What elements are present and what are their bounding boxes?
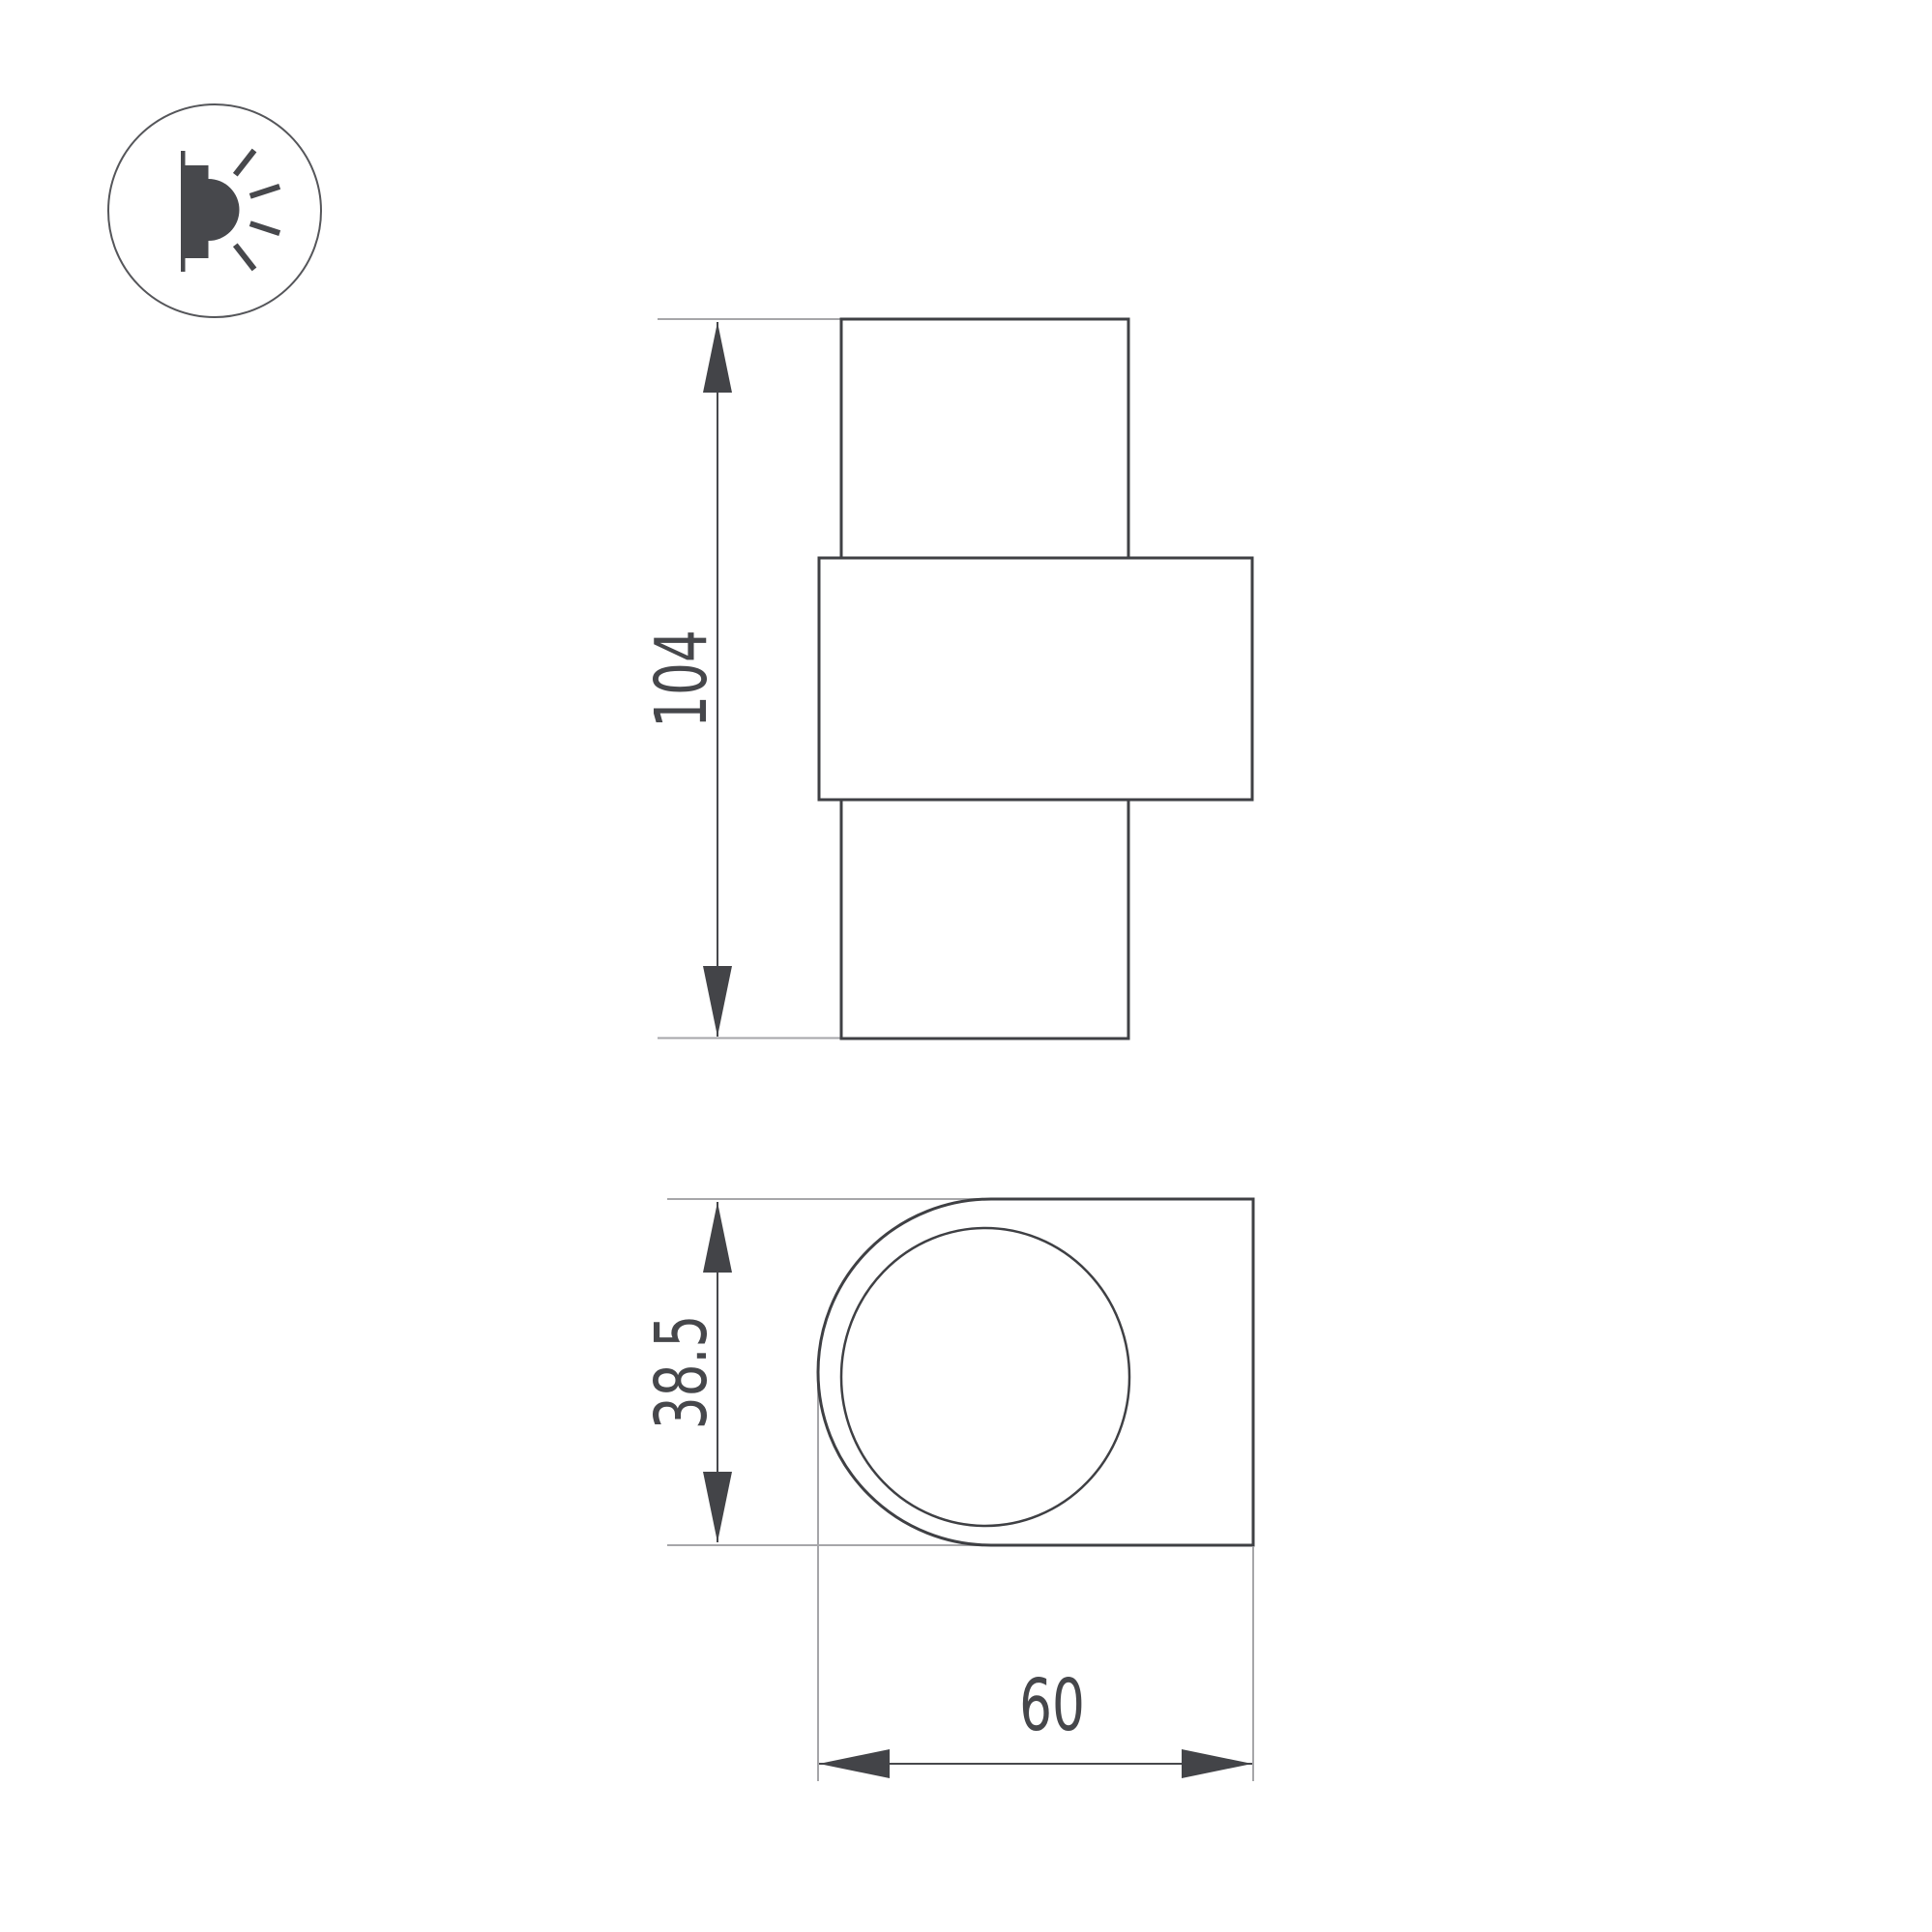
- side-width-arrow-left: [819, 1749, 890, 1778]
- side-width-dimension: 60: [819, 1664, 1252, 1778]
- icon-lamp-body: [186, 165, 209, 258]
- drawing-page: 104 38.5: [0, 0, 1932, 1932]
- front-view: 104: [640, 319, 1252, 1039]
- side-depth-arrow-up: [703, 1202, 732, 1273]
- front-dimension-arrow-down: [703, 966, 732, 1037]
- side-depth-arrow-down: [703, 1472, 732, 1542]
- icon-wall-line: [181, 151, 186, 272]
- front-upper-tube: [841, 319, 1128, 558]
- side-width-arrow-right: [1182, 1749, 1252, 1778]
- front-height-dimension: 104: [640, 322, 732, 1037]
- front-dimension-arrow-up: [703, 322, 732, 393]
- wall-lamp-light-icon: [108, 104, 321, 317]
- front-middle-body: [819, 558, 1252, 800]
- side-depth-label: 38.5: [640, 1315, 723, 1430]
- front-lower-tube: [841, 800, 1128, 1039]
- front-fixture-outline: [819, 319, 1252, 1039]
- front-height-label: 104: [640, 629, 723, 728]
- side-body-outline: [818, 1199, 1253, 1545]
- side-depth-dimension: 38.5: [640, 1202, 732, 1542]
- side-view: 38.5 60: [640, 1199, 1253, 1781]
- technical-drawing: 104 38.5: [0, 0, 1932, 1932]
- side-width-label: 60: [1019, 1664, 1085, 1747]
